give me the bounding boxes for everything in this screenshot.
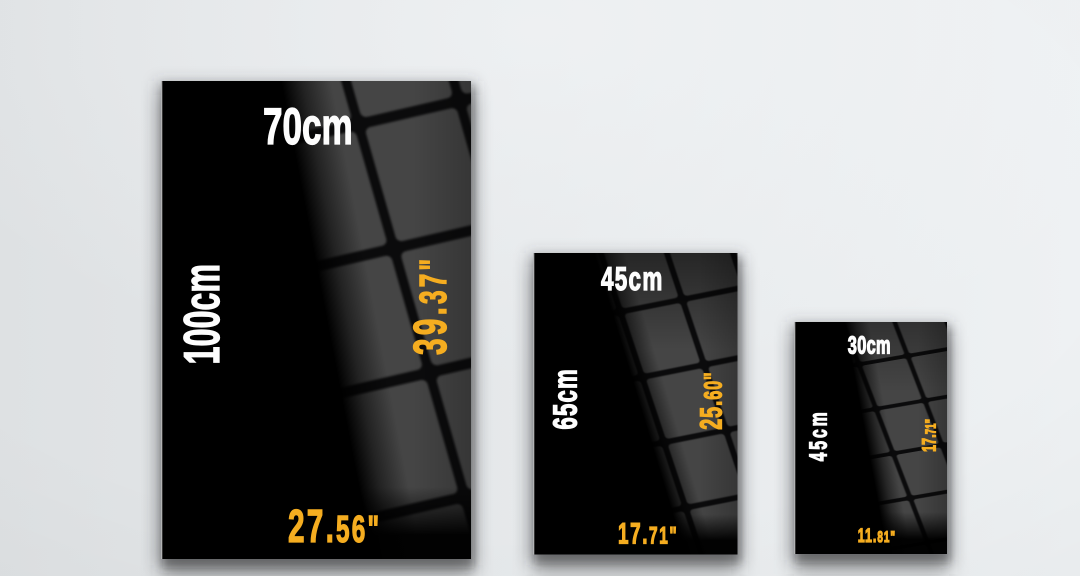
svg-text:65cm: 65cm xyxy=(548,368,585,429)
svg-text:25.60": 25.60" xyxy=(693,372,728,430)
svg-text:17.71": 17.71" xyxy=(920,419,941,452)
svg-text:30cm: 30cm xyxy=(848,333,891,360)
svg-text:45cm: 45cm xyxy=(806,409,833,461)
svg-text:17.71": 17.71" xyxy=(618,518,678,551)
svg-text:100cm: 100cm xyxy=(173,264,230,365)
svg-text:11.81": 11.81" xyxy=(858,525,896,547)
svg-text:70cm: 70cm xyxy=(263,97,353,155)
svg-text:45cm: 45cm xyxy=(601,260,664,297)
